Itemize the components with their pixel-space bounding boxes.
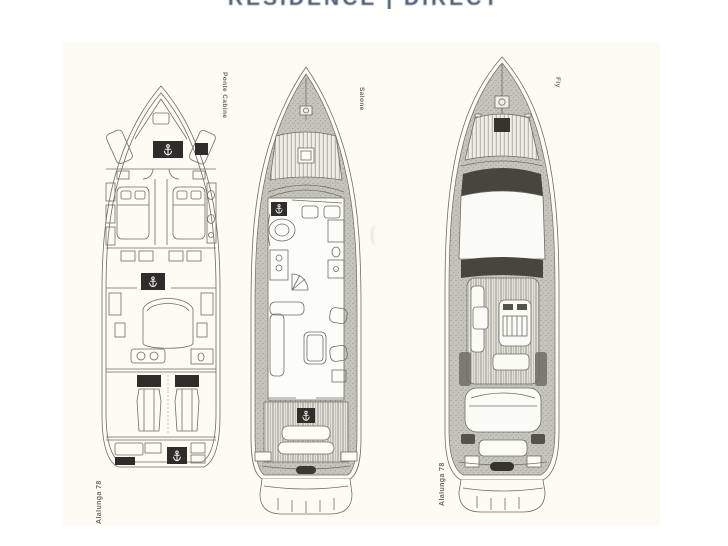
header-watermark: RESIDENCE | DIRECT [0,0,728,9]
deck-label-fly: Fly [554,77,561,88]
transom-gate [490,462,514,471]
fly-helm-console [499,300,531,346]
fore-hatch [494,118,510,132]
deck-label-salone: Salone [358,87,365,111]
aft-sunpad [465,388,541,432]
engine-block [137,375,161,387]
fly-helm-seat [473,307,488,329]
toilet-fixture [198,353,204,361]
model-label-left: Alalunga 78 [96,466,103,524]
foredeck-sunpad [270,132,342,180]
sink-fixture [137,352,145,360]
cabin-roof [459,191,545,259]
main-deck-drawing [242,62,377,524]
plan-lower-deck [91,83,231,478]
aft-cockpit [255,402,357,462]
arch-post [535,352,547,386]
stairs-box-mid [141,273,165,290]
flybridge [459,278,547,386]
header-watermark-text: RESIDENCE | DIRECT [228,0,500,9]
stairs-box-forward [153,141,208,158]
lower-deck-drawing [91,83,231,478]
cleat [525,114,531,117]
fly-deck-drawing [435,54,572,522]
plan-fly-deck [435,54,572,522]
swim-platform [459,480,545,512]
engine-room [137,375,199,433]
engine-block [175,375,199,387]
model-label-right: Alalunga 78 [439,448,446,506]
plan-main-deck [242,62,377,524]
master-cabin [109,293,213,364]
arch-post [459,352,471,386]
cockpit-bench [278,442,334,454]
guest-cabins [106,179,216,245]
cockpit-table [282,426,330,440]
master-bed [143,299,193,349]
fly-bench [493,354,529,370]
brochure-sheet: Ponte Cabine Salone Fly Alalunga 78 Alal… [63,42,660,526]
fly-front-band [461,257,543,278]
sink-fixture [150,352,158,360]
wardrobe-row [121,251,201,261]
scan-artifact [371,224,382,246]
sink-fixture [209,233,214,238]
aft-bench [479,440,527,456]
transom-gate [296,466,316,474]
swim-platform [260,479,352,514]
deck-label-ponte-cabine: Ponte Cabine [221,72,228,118]
stairs-box-helm [271,202,287,216]
